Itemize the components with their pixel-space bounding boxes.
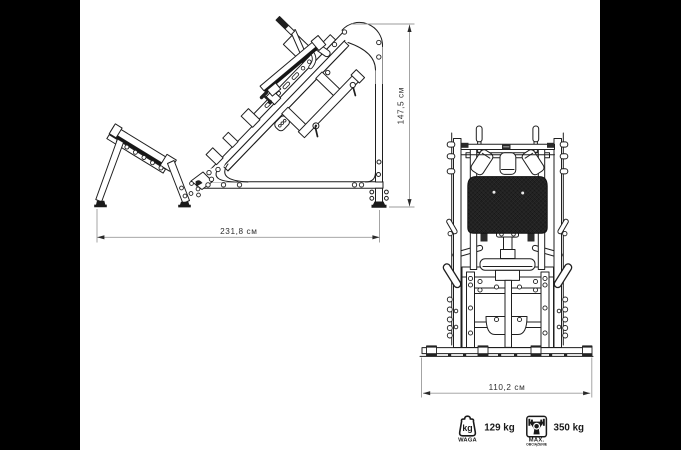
svg-text:129 kg: 129 kg: [484, 422, 515, 433]
svg-text:147,5 cм: 147,5 cм: [397, 87, 406, 124]
svg-text:350 kg: 350 kg: [554, 422, 585, 433]
svg-text:WAGA: WAGA: [458, 438, 477, 444]
svg-text:231,8 cм: 231,8 cм: [220, 227, 257, 236]
svg-text:OBCIĄŻENIE: OBCIĄŻENIE: [526, 442, 548, 446]
svg-text:kg: kg: [462, 423, 472, 433]
svg-text:110,2 cм: 110,2 cм: [489, 383, 526, 392]
